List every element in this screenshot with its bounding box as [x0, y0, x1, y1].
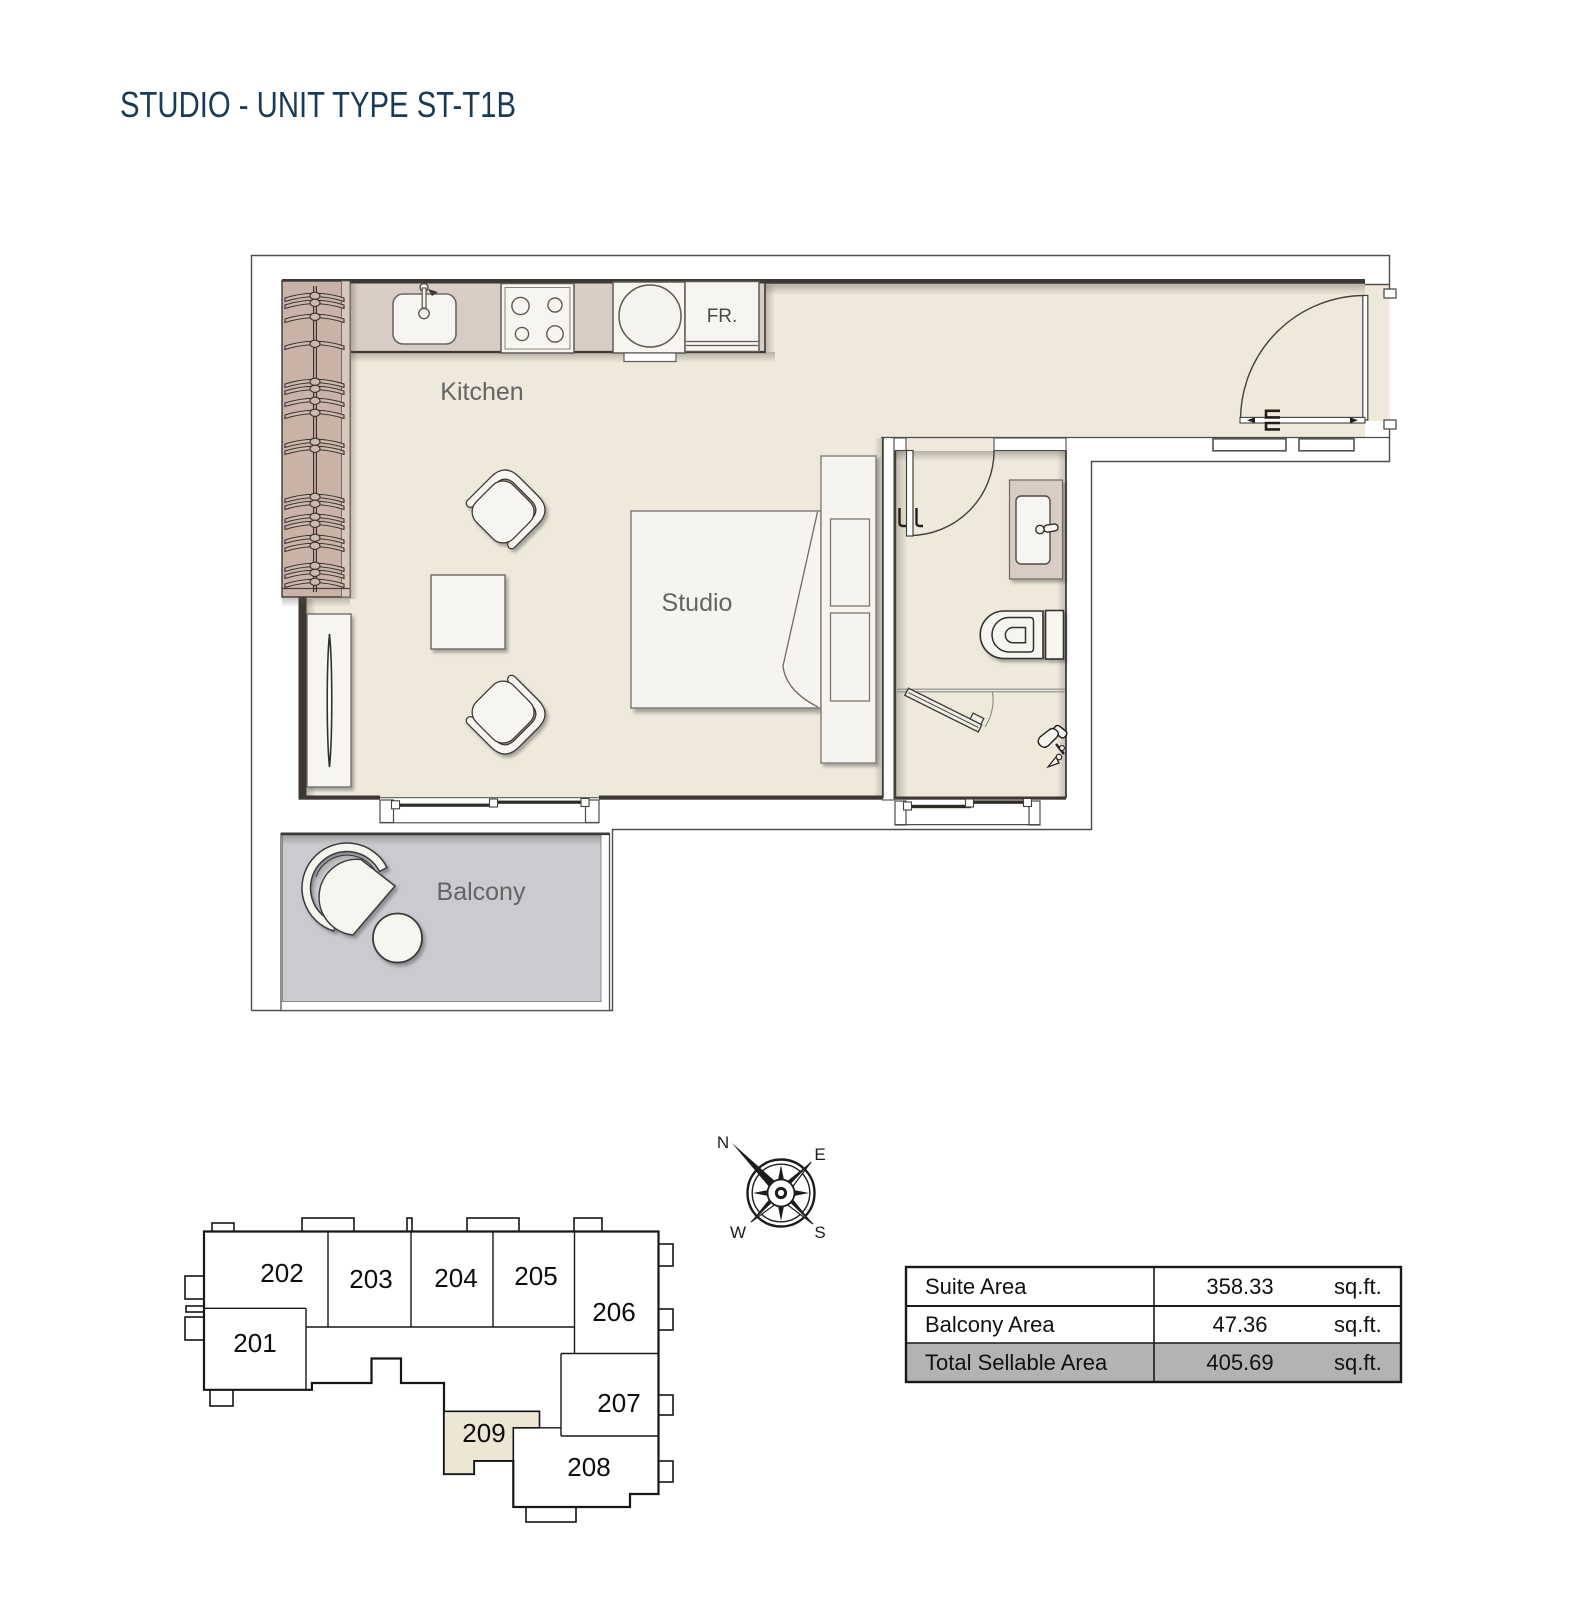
svg-text:E: E	[814, 1145, 825, 1164]
svg-text:47.36: 47.36	[1212, 1312, 1267, 1337]
svg-text:S: S	[814, 1223, 825, 1242]
svg-text:sq.ft.: sq.ft.	[1334, 1274, 1382, 1299]
svg-text:sq.ft.: sq.ft.	[1334, 1312, 1382, 1337]
svg-text:Studio: Studio	[662, 589, 733, 617]
svg-text:202: 202	[260, 1258, 303, 1288]
svg-text:205: 205	[514, 1261, 557, 1291]
svg-text:Balcony: Balcony	[437, 878, 526, 906]
svg-text:Suite Area: Suite Area	[925, 1274, 1027, 1299]
svg-text:209: 209	[462, 1418, 505, 1448]
svg-text:201: 201	[233, 1328, 276, 1358]
svg-text:Balcony Area: Balcony Area	[925, 1312, 1055, 1337]
svg-text:204: 204	[434, 1263, 477, 1293]
svg-text:206: 206	[592, 1297, 635, 1327]
svg-text:Total Sellable Area: Total Sellable Area	[925, 1350, 1108, 1375]
svg-text:N: N	[717, 1133, 729, 1152]
svg-text:sq.ft.: sq.ft.	[1334, 1350, 1382, 1375]
svg-text:358.33: 358.33	[1206, 1274, 1273, 1299]
svg-text:405.69: 405.69	[1206, 1350, 1273, 1375]
svg-text:207: 207	[597, 1388, 640, 1418]
svg-text:203: 203	[349, 1264, 392, 1294]
svg-text:W: W	[730, 1223, 746, 1242]
svg-text:208: 208	[567, 1452, 610, 1482]
svg-text:Kitchen: Kitchen	[440, 378, 523, 406]
svg-text:FR.: FR.	[707, 306, 738, 327]
svg-text:STUDIO - UNIT TYPE ST-T1B: STUDIO - UNIT TYPE ST-T1B	[120, 84, 516, 125]
